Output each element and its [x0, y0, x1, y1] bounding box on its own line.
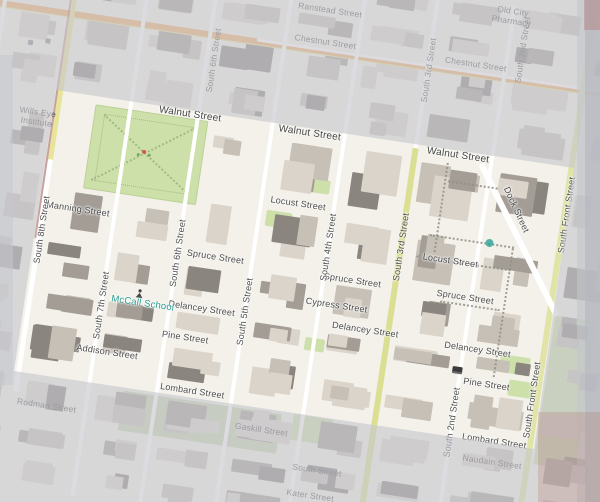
building — [578, 373, 598, 392]
poi-icon-dim — [45, 38, 51, 44]
building — [218, 45, 250, 70]
building — [223, 138, 242, 156]
building — [514, 362, 531, 376]
building — [184, 450, 208, 469]
building — [369, 121, 386, 136]
building — [200, 360, 221, 376]
building — [350, 390, 371, 409]
building — [114, 252, 140, 283]
building — [18, 11, 51, 40]
poi-icon-dim — [28, 40, 34, 46]
building — [22, 58, 42, 76]
building — [0, 243, 23, 270]
building — [163, 80, 193, 108]
building — [268, 274, 298, 302]
map-viewport: Walnut Street Walnut Street Walnut Stree… — [0, 0, 600, 502]
building — [419, 312, 446, 337]
building — [269, 328, 288, 343]
building — [360, 151, 402, 196]
building — [186, 266, 222, 294]
building — [115, 442, 137, 460]
building — [167, 490, 190, 502]
building — [305, 95, 326, 111]
museum-icon — [452, 366, 463, 374]
building — [307, 55, 341, 80]
building — [280, 160, 315, 194]
building — [106, 475, 125, 490]
building — [543, 458, 573, 488]
building — [48, 326, 78, 362]
building — [267, 372, 292, 395]
building — [521, 125, 545, 152]
building — [318, 421, 358, 453]
